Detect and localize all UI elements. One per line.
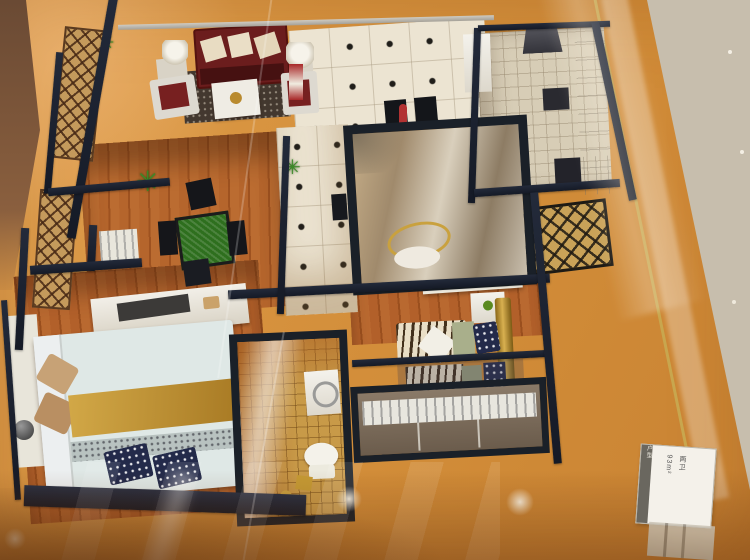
model-photo-scene: ✳ ✳ ✳	[0, 0, 750, 560]
south-balcony-glass-box	[350, 377, 550, 463]
bedside-lamp-sphere	[14, 420, 34, 440]
floor-speck-1	[728, 50, 732, 54]
sofa-pillow-1	[200, 35, 227, 62]
bottom-wall-gold-detail	[295, 475, 313, 491]
balcony-railing	[362, 392, 537, 425]
armchair-left	[149, 74, 200, 121]
green-bottle	[483, 300, 494, 311]
card-baths-text: 两卫	[672, 455, 687, 518]
balcony-mullion-2	[477, 419, 480, 447]
kitchen-appliance-dark	[542, 87, 569, 110]
study-chair-bottom	[182, 258, 211, 286]
coffee-table	[211, 79, 261, 120]
second-bathroom-shade	[237, 338, 347, 518]
card-body-text: 93m² 两卫	[659, 454, 687, 518]
sofa-pillow-3	[253, 31, 281, 59]
card-area-text: 93m²	[659, 454, 674, 517]
gold-bed-runner	[68, 378, 239, 437]
hall-black-chair	[331, 194, 348, 221]
card-header-strip: 户型	[636, 445, 652, 524]
card-reflection-line-1	[663, 523, 668, 557]
armchair-left-cushion	[158, 82, 189, 110]
bathroom-dark-corner	[353, 131, 415, 175]
hall-red-cabinet	[289, 64, 303, 100]
polka-pillow-1	[472, 321, 500, 354]
study-chair-right	[226, 220, 247, 256]
card-reflection	[647, 522, 715, 560]
range-hood	[521, 26, 562, 54]
card-reflection-line-2	[681, 524, 686, 558]
floor-speck-3	[732, 300, 736, 304]
card-strip-text: 户型	[643, 445, 653, 460]
tv-panel	[117, 294, 191, 322]
washer-door-ring	[312, 380, 340, 408]
study-chair-left	[158, 220, 178, 255]
unit-label-card: 户型 93m² 两卫	[635, 443, 716, 528]
sofa-pillow-2	[227, 32, 253, 58]
study-chair-top	[185, 178, 216, 211]
glare-dot-3	[4, 528, 26, 550]
coffee-table-decor	[229, 91, 242, 104]
sideboard-decor	[203, 296, 220, 310]
master-bed	[33, 320, 247, 503]
balcony-mullion-1	[417, 423, 420, 451]
floor-lamp-left	[162, 40, 188, 70]
main-bathroom-glass-box	[343, 115, 537, 296]
washing-machine	[304, 369, 341, 416]
glare-dot-2	[506, 488, 534, 516]
floor-speck-2	[740, 150, 744, 154]
